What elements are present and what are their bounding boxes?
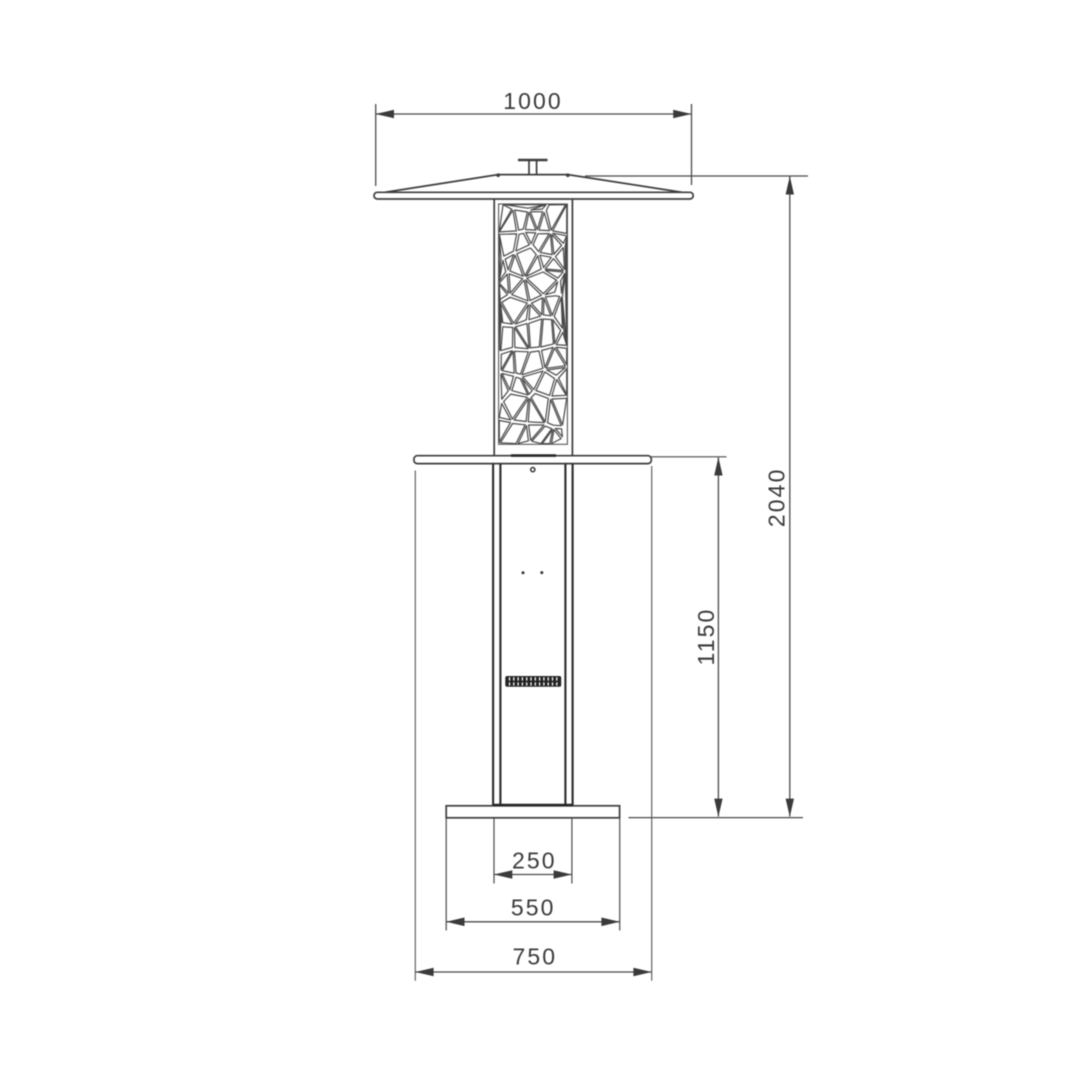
svg-text:2040: 2040 xyxy=(764,468,790,528)
svg-text:1000: 1000 xyxy=(503,88,563,114)
svg-text:750: 750 xyxy=(512,944,557,970)
svg-text:550: 550 xyxy=(511,895,556,921)
svg-text:1150: 1150 xyxy=(693,608,719,666)
svg-text:250: 250 xyxy=(512,848,557,874)
